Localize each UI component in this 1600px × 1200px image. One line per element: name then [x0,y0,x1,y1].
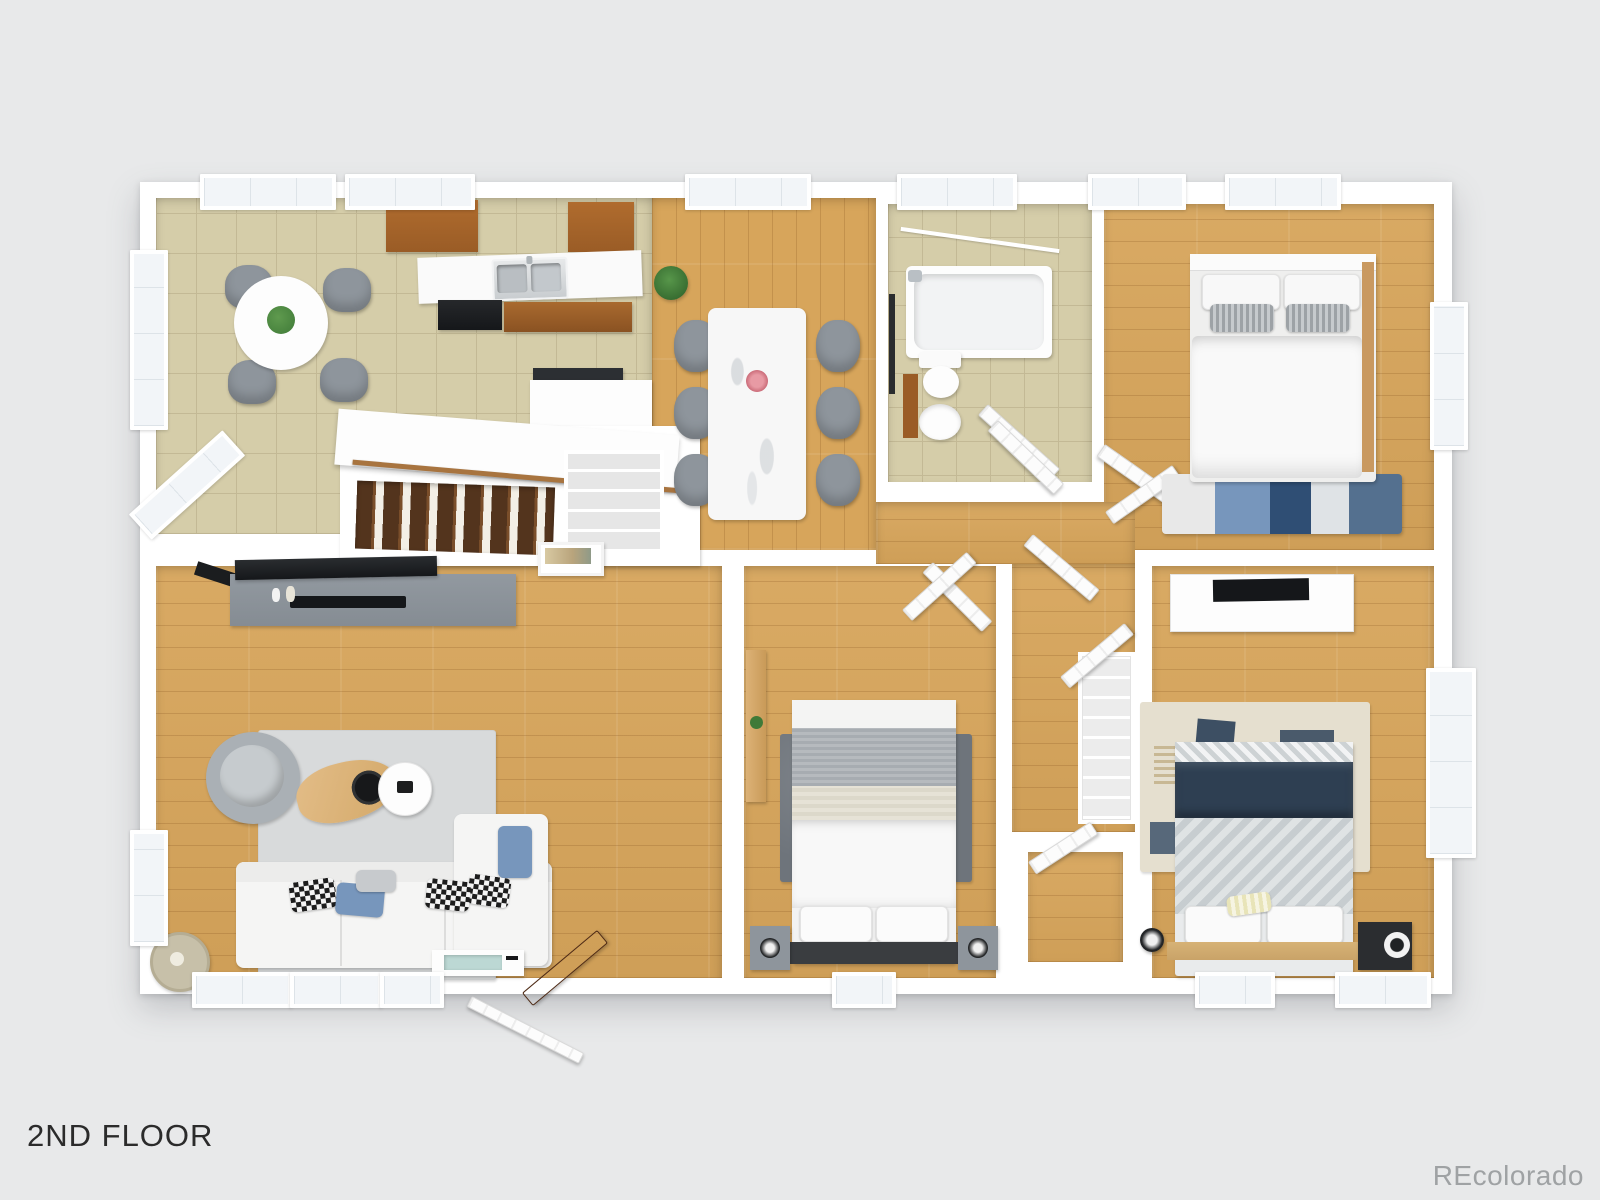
armchair-cushion [220,745,284,807]
gray-pillow [1286,304,1350,332]
table-plant [267,306,295,334]
floor-plan [140,182,1452,994]
wire-shelves [568,454,660,552]
book-icon [397,781,413,793]
round-speaker [1140,928,1164,952]
hinge-icon [506,956,518,960]
storm-door-open [467,996,585,1064]
range-cooktop [438,300,502,330]
round-speaker [968,938,988,958]
dining-chair [816,387,860,439]
gray-pillow [356,870,396,892]
canvas: { "canvas": {"width": 1600, "height": 12… [0,0,1600,1200]
window [130,250,168,430]
bedroom1-bed [1190,254,1376,482]
bedroom3-bed [1175,742,1353,976]
nightstand [958,926,998,970]
small-framed-art [538,542,604,576]
bed-wood-rail [1362,262,1374,472]
dining-table [708,308,806,520]
linen-closet [1078,652,1135,824]
flower-centerpiece [746,370,768,392]
nook-chair [320,358,368,402]
nightstand [750,926,790,970]
window [1225,174,1341,210]
window [897,174,1017,210]
upper-cabinet [568,202,634,252]
glass-top-bench [432,950,524,976]
navy-blanket [1175,762,1353,818]
window [1195,972,1275,1008]
gray-blanket-band [792,728,956,786]
toilet [923,366,959,398]
staircase [355,481,555,556]
window [1088,174,1186,210]
dining-plant [654,266,688,300]
wall-desk [746,650,766,802]
glass-top [444,955,502,970]
gray-pillow [1210,304,1274,332]
bedroom1-rug [1162,474,1402,534]
vase-icon [272,588,280,602]
window [290,972,382,1008]
vanity-side [903,374,918,438]
dark-headboard [788,942,960,964]
headboard [1190,254,1376,271]
window [1335,972,1431,1008]
vase-icon [286,586,295,602]
lamp-bulb [170,952,184,966]
window [192,972,292,1008]
window [200,174,336,210]
kitchen-counter [417,250,642,304]
linen-shelves [1083,657,1130,819]
faucet-icon [526,256,532,264]
tv [235,556,437,580]
round-speaker [1384,932,1410,958]
floor-label: 2ND FLOOR [27,1118,213,1154]
folded-edge [1175,742,1353,762]
dark-nightstand [1358,922,1412,970]
window [380,972,444,1008]
swivel-armchair [206,732,300,824]
window [130,830,168,946]
desk-plant [750,716,763,729]
bathroom-mirror [889,294,895,394]
window [685,174,811,210]
blue-pillow [498,826,532,878]
checkered-pillow [425,878,472,912]
white-duvet [792,820,956,908]
white-pillow [1267,906,1343,944]
base-cabinets [504,302,632,332]
bay-window [1426,668,1476,858]
dining-chair [816,454,860,506]
sink-basin [497,264,528,293]
framed-art-print [545,548,591,564]
dining-chair [816,320,860,372]
platform-base [1167,942,1361,960]
duvet [1192,336,1362,478]
nook-round-table [234,276,328,370]
bed-sheet [792,700,956,728]
bathtub-basin [914,274,1044,350]
checkered-pillow [466,873,512,909]
shower-fixture-icon [908,270,922,282]
white-pillow [876,906,948,942]
dresser [1170,574,1354,632]
watermark: REcolorado [1433,1160,1584,1192]
window [345,174,475,210]
round-speaker [760,938,780,958]
soundbar [290,596,406,608]
wire-shelf-closet [564,450,664,556]
white-pillow [800,906,872,942]
pedestal-sink [919,404,961,440]
hall-upper-floor [876,502,1135,564]
bedroom2-bed [792,700,956,964]
window [1430,302,1468,450]
bathtub [906,266,1052,358]
side-table [378,762,432,816]
media-console [230,574,516,626]
sink-basin [531,263,562,292]
checkered-pillow [288,877,338,913]
cream-band [792,786,956,820]
peninsula-countertop [533,368,623,380]
bedroom3-tv [1213,578,1309,602]
window [832,972,896,1008]
nook-chair [323,268,371,312]
double-sink [491,257,568,302]
